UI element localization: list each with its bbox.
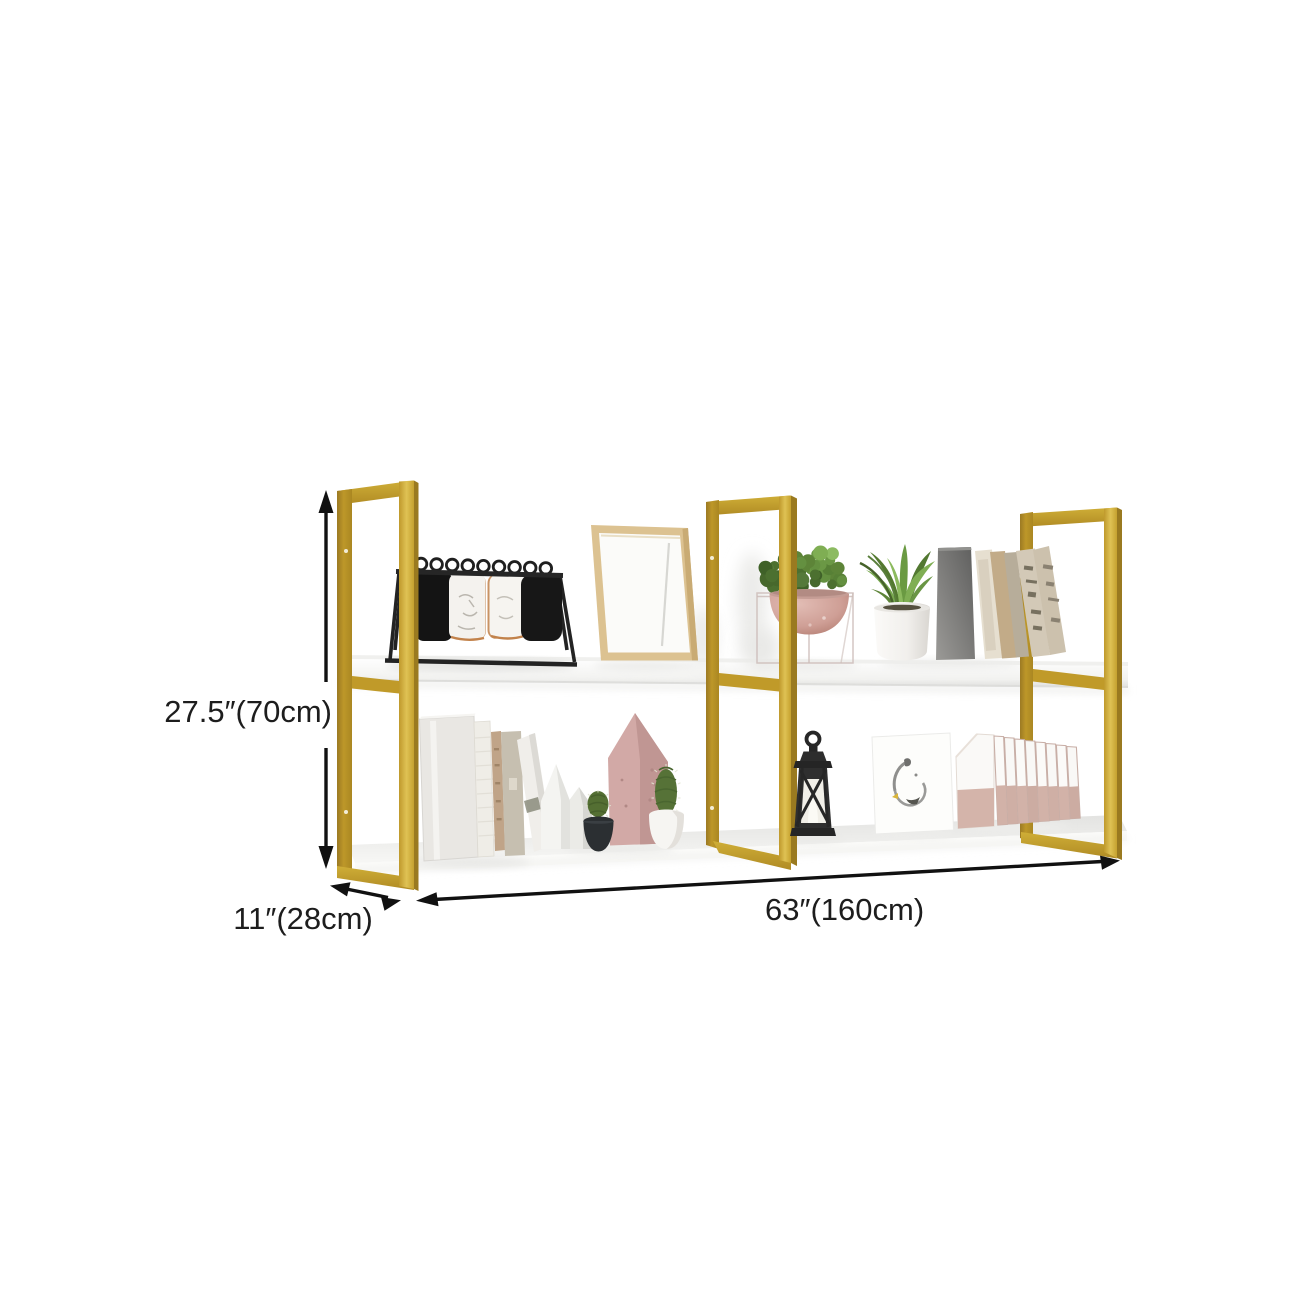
svg-text:11″(28cm): 11″(28cm) [233,901,373,936]
svg-text:27.5″(70cm): 27.5″(70cm) [164,694,332,729]
svg-text:63″(160cm): 63″(160cm) [765,892,924,927]
